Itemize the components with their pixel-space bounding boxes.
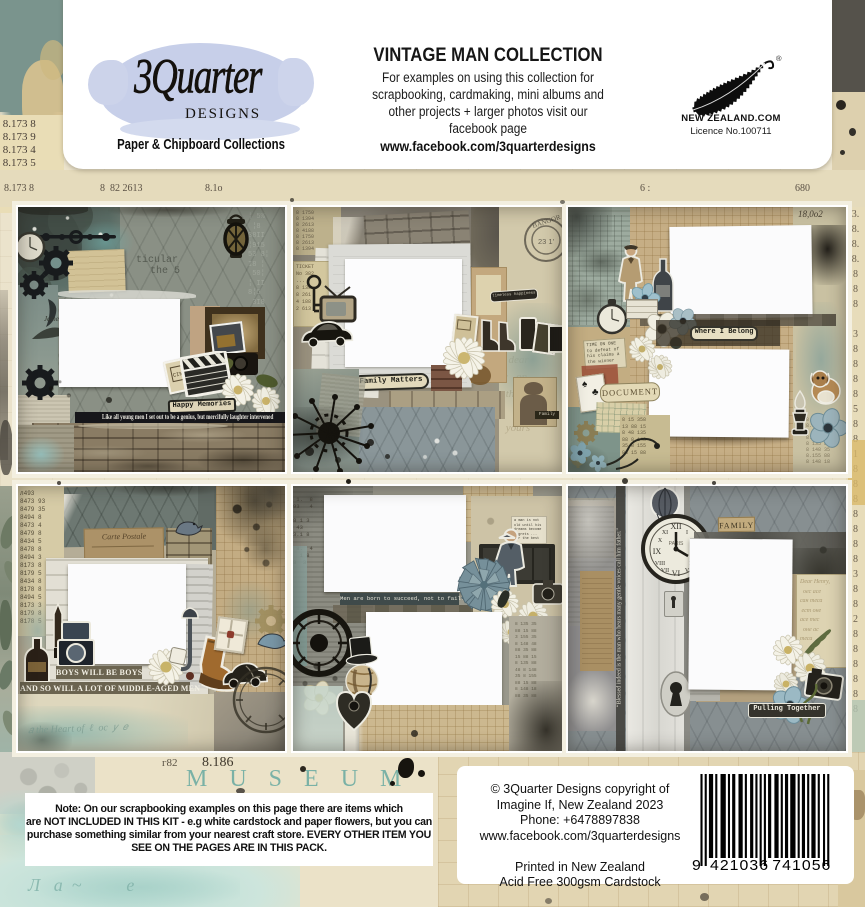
svg-text:X: X [658, 538, 663, 544]
svg-text:23 1': 23 1' [538, 237, 555, 246]
svg-text:421036: 421036 [710, 857, 769, 874]
svg-text:741056: 741056 [772, 857, 831, 874]
svg-text:IX: IX [653, 547, 662, 556]
svg-text:VI: VI [672, 569, 681, 578]
svg-text:9: 9 [692, 857, 701, 874]
svg-text:XII: XII [670, 522, 681, 531]
svg-text:XI: XI [662, 530, 668, 536]
svg-text:VII: VII [661, 568, 669, 574]
svg-text:I: I [686, 530, 688, 536]
svg-text:®: ® [776, 54, 782, 63]
svg-text:VIII: VIII [655, 561, 665, 567]
